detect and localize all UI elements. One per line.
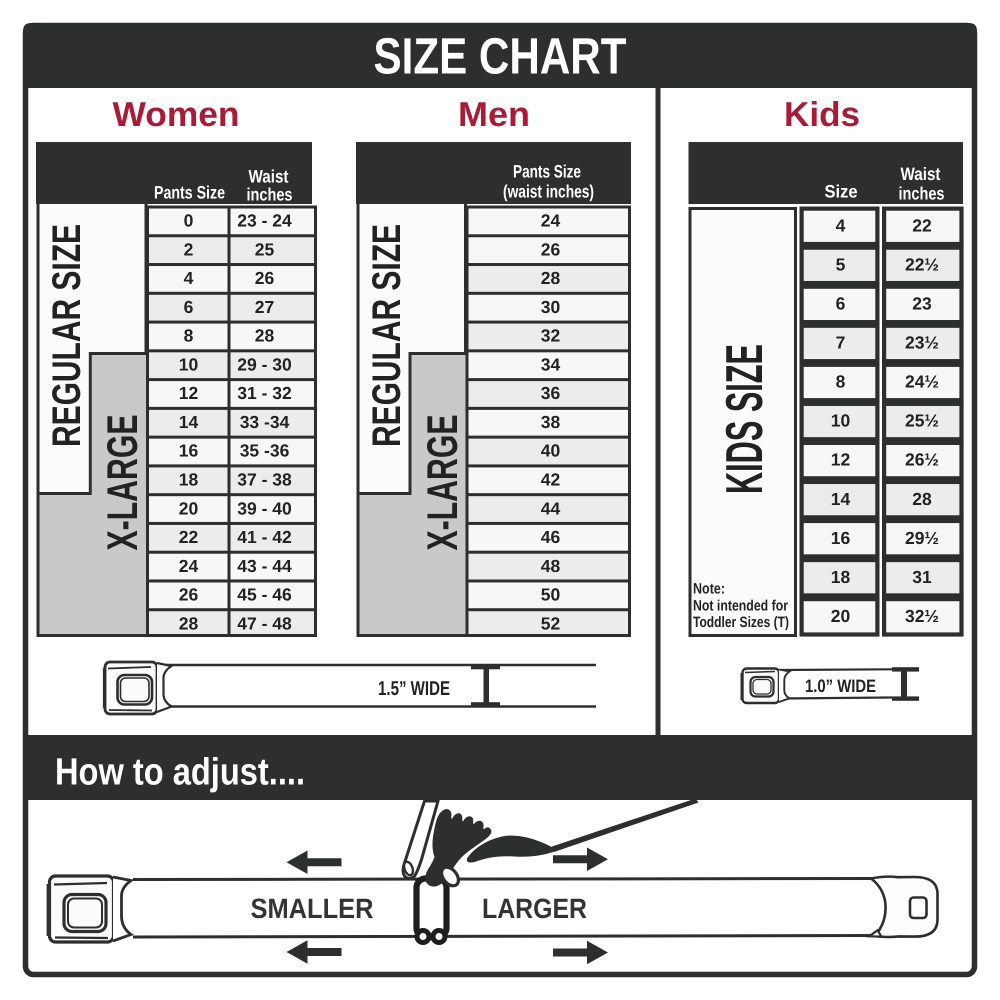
svg-text:43 - 44: 43 - 44 (237, 556, 292, 576)
svg-text:32½: 32½ (905, 606, 939, 626)
svg-text:6: 6 (184, 297, 194, 317)
svg-text:39 - 40: 39 - 40 (237, 498, 292, 518)
svg-text:24½: 24½ (905, 372, 939, 392)
svg-text:31 - 32: 31 - 32 (237, 383, 292, 403)
svg-text:Kids: Kids (784, 96, 860, 134)
svg-text:25: 25 (255, 239, 275, 259)
svg-text:How to adjust....: How to adjust.... (55, 752, 305, 794)
svg-text:18: 18 (831, 567, 851, 587)
svg-text:28: 28 (912, 489, 932, 509)
svg-text:42: 42 (541, 469, 561, 489)
svg-text:27: 27 (255, 297, 274, 317)
svg-text:26: 26 (255, 268, 275, 288)
svg-text:38: 38 (541, 412, 561, 432)
svg-text:29 - 30: 29 - 30 (237, 354, 292, 374)
svg-text:Women: Women (113, 96, 240, 134)
svg-text:52: 52 (541, 613, 561, 633)
svg-text:28: 28 (255, 326, 275, 346)
svg-text:26: 26 (179, 585, 199, 605)
svg-text:inches: inches (899, 184, 945, 204)
svg-text:Not intended for: Not intended for (693, 598, 788, 615)
svg-text:16: 16 (831, 528, 851, 548)
svg-text:26½: 26½ (905, 450, 939, 470)
svg-text:34: 34 (541, 354, 561, 374)
svg-text:28: 28 (179, 613, 199, 633)
svg-text:40: 40 (541, 441, 561, 461)
svg-text:Size: Size (825, 182, 858, 202)
svg-text:25½: 25½ (905, 411, 939, 431)
svg-text:4: 4 (184, 268, 194, 288)
svg-text:REGULAR SIZE: REGULAR SIZE (45, 224, 89, 447)
svg-text:16: 16 (179, 441, 199, 461)
svg-text:Men: Men (458, 96, 530, 134)
svg-text:33 -34: 33 -34 (240, 412, 290, 432)
svg-text:14: 14 (179, 412, 199, 432)
svg-text:48: 48 (541, 556, 561, 576)
svg-text:23: 23 (912, 294, 932, 314)
svg-text:5: 5 (836, 254, 846, 274)
svg-text:29½: 29½ (905, 528, 939, 548)
svg-text:50: 50 (541, 585, 561, 605)
svg-text:Waist: Waist (901, 164, 941, 184)
svg-text:12: 12 (179, 383, 199, 403)
svg-text:31: 31 (912, 567, 932, 587)
svg-text:12: 12 (831, 450, 851, 470)
svg-text:inches: inches (247, 185, 293, 205)
svg-text:44: 44 (541, 498, 561, 518)
svg-text:10: 10 (831, 411, 851, 431)
svg-text:14: 14 (831, 489, 851, 509)
svg-text:7: 7 (836, 333, 846, 353)
svg-text:46: 46 (541, 527, 561, 547)
svg-text:0: 0 (184, 211, 194, 231)
svg-text:45 - 46: 45 - 46 (237, 585, 292, 605)
svg-text:10: 10 (179, 354, 199, 374)
svg-text:22: 22 (912, 215, 932, 235)
svg-text:SMALLER: SMALLER (251, 893, 374, 924)
svg-text:KIDS SIZE: KIDS SIZE (716, 344, 774, 494)
svg-text:22½: 22½ (905, 254, 939, 274)
svg-text:2: 2 (184, 239, 194, 259)
svg-text:20: 20 (179, 498, 199, 518)
svg-text:4: 4 (836, 215, 846, 235)
svg-text:37 - 38: 37 - 38 (237, 469, 292, 489)
svg-text:1.0” WIDE: 1.0” WIDE (805, 676, 876, 696)
svg-text:35 -36: 35 -36 (240, 441, 290, 461)
svg-text:30: 30 (541, 297, 561, 317)
svg-text:SIZE CHART: SIZE CHART (374, 28, 627, 85)
svg-text:20: 20 (831, 606, 851, 626)
svg-text:1.5” WIDE: 1.5” WIDE (378, 678, 450, 700)
svg-text:47 - 48: 47 - 48 (237, 613, 292, 633)
svg-text:Pants Size: Pants Size (513, 162, 581, 182)
svg-text:Waist: Waist (249, 167, 289, 187)
svg-text:Pants Size: Pants Size (154, 183, 225, 203)
svg-text:8: 8 (836, 372, 846, 392)
svg-text:LARGER: LARGER (482, 893, 587, 924)
svg-text:36: 36 (541, 383, 561, 403)
svg-text:22: 22 (179, 527, 199, 547)
svg-text:32: 32 (541, 326, 561, 346)
svg-text:23½: 23½ (905, 333, 939, 353)
svg-text:8: 8 (184, 326, 194, 346)
svg-text:Note:: Note: (693, 581, 725, 598)
svg-text:X-LARGE: X-LARGE (419, 415, 467, 551)
svg-text:26: 26 (541, 239, 561, 259)
svg-text:23 - 24: 23 - 24 (237, 211, 292, 231)
svg-text:24: 24 (541, 211, 561, 231)
svg-text:18: 18 (179, 469, 199, 489)
svg-text:X-LARGE: X-LARGE (99, 415, 147, 551)
svg-text:24: 24 (179, 556, 199, 576)
svg-text:41 - 42: 41 - 42 (237, 527, 292, 547)
svg-text:(waist inches): (waist inches) (503, 182, 594, 202)
svg-text:6: 6 (836, 294, 846, 314)
svg-text:Toddler Sizes (T): Toddler Sizes (T) (693, 614, 789, 631)
svg-text:REGULAR SIZE: REGULAR SIZE (365, 224, 409, 447)
svg-text:28: 28 (541, 268, 561, 288)
